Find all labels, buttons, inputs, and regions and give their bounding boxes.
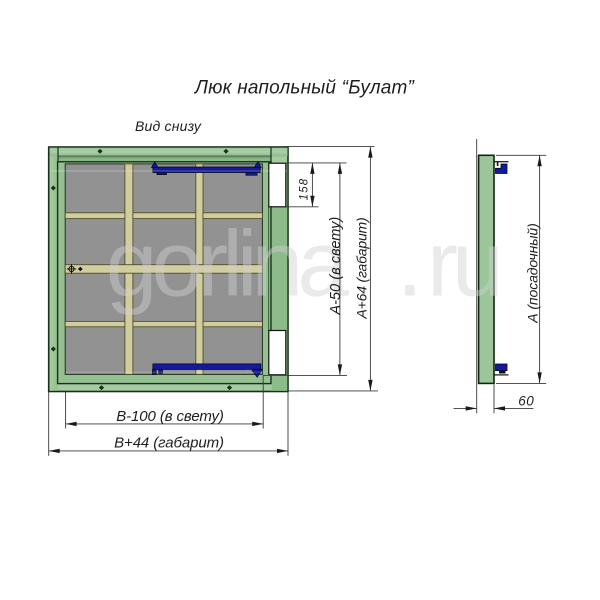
svg-text:В+44 (габарит): В+44 (габарит) (114, 435, 224, 452)
svg-text:Люк напольный “Булат”: Люк напольный “Булат” (193, 78, 416, 99)
svg-text:60: 60 (518, 393, 534, 408)
svg-text:gorlina: gorlina (106, 212, 349, 316)
svg-text:А (посадочный): А (посадочный) (524, 223, 540, 323)
svg-text:158: 158 (299, 178, 311, 201)
svg-text:ru: ru (427, 212, 498, 316)
svg-text:А-50 (в свету): А-50 (в свету) (328, 217, 344, 316)
svg-text:А+64 (габарит): А+64 (габарит) (354, 218, 370, 320)
svg-text:В-100 (в свету): В-100 (в свету) (116, 408, 224, 425)
svg-text:Вид снизу: Вид снизу (135, 118, 202, 134)
